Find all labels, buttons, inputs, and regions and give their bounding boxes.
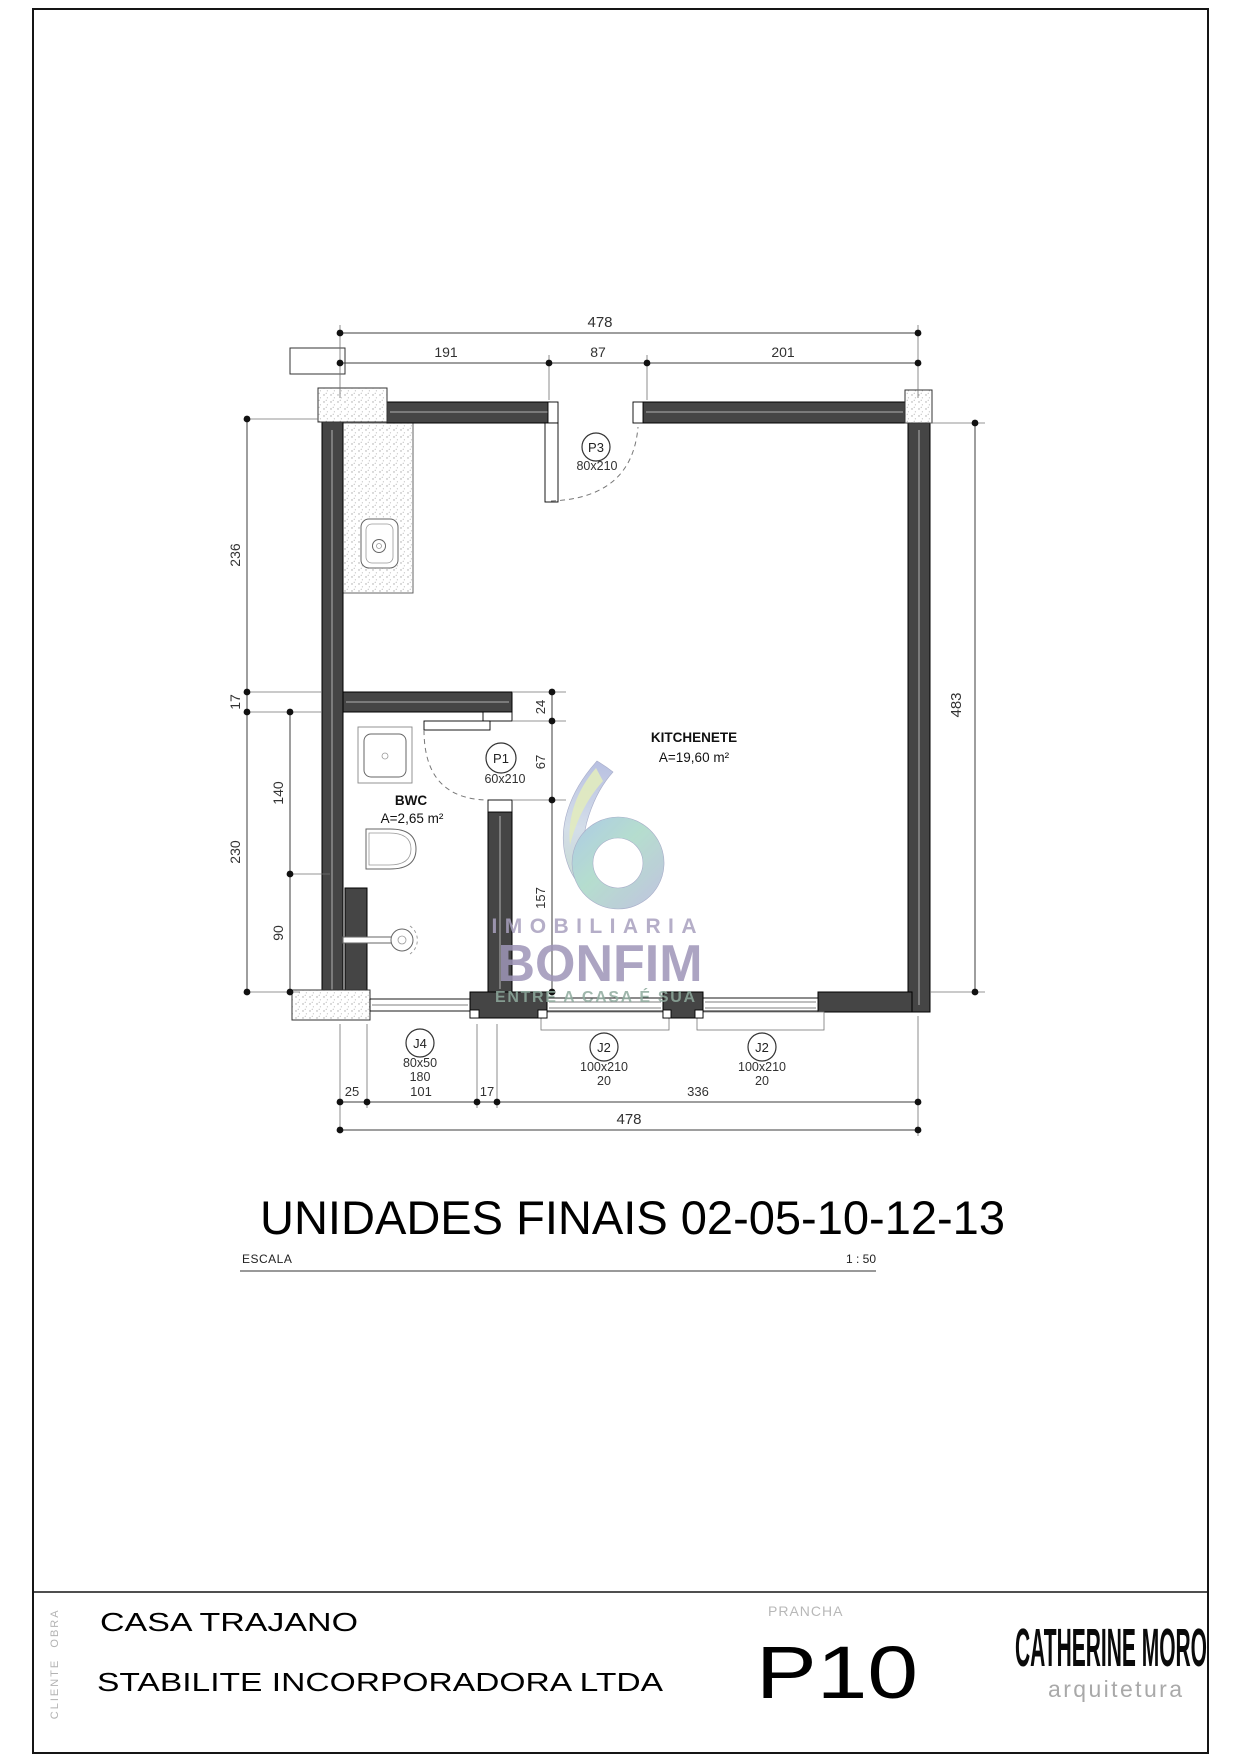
door-p1-leaf bbox=[424, 721, 490, 730]
window-j2a-id: J2 bbox=[597, 1040, 611, 1055]
dim-top-a: 191 bbox=[434, 344, 458, 360]
dim-tick bbox=[549, 689, 556, 696]
dim-tick bbox=[546, 360, 553, 367]
dim-tick bbox=[287, 989, 294, 996]
dim-mid-b: 67 bbox=[533, 755, 548, 769]
sill-shaft-bottomleft bbox=[292, 990, 370, 1020]
dim-tick bbox=[474, 1099, 481, 1106]
window-j4-id: J4 bbox=[413, 1036, 427, 1051]
room-area-bwc: A=2,65 m² bbox=[381, 811, 444, 826]
dim-top-c: 201 bbox=[771, 344, 795, 360]
titleblock-cliente-value: STABILITE INCORPORADORA LTDA bbox=[97, 1667, 664, 1697]
dim-tick bbox=[244, 989, 251, 996]
dim-bottom-b: 101 bbox=[410, 1084, 432, 1099]
door-p1-jamb-top bbox=[483, 712, 512, 721]
door-p3-jamb-left bbox=[548, 402, 558, 423]
door-p1-id: P1 bbox=[493, 751, 509, 766]
titleblock-obra-label: OBRA bbox=[49, 1608, 61, 1647]
room-label-bwc: BWC bbox=[395, 793, 427, 808]
dim-tick bbox=[915, 1127, 922, 1134]
dim-tick bbox=[915, 360, 922, 367]
frame-square-3 bbox=[663, 1010, 671, 1018]
titleblock-prancha-label: PRANCHA bbox=[768, 1603, 843, 1619]
watermark-line3: ENTRE A CASA É SUA bbox=[495, 987, 695, 1006]
window-j2a-sill bbox=[541, 1012, 669, 1030]
shower-arm bbox=[343, 937, 395, 943]
dim-tick bbox=[337, 360, 344, 367]
dim-tick bbox=[364, 1099, 371, 1106]
dim-tick bbox=[287, 871, 294, 878]
corner-shaft-topright bbox=[905, 390, 932, 423]
window-j2a-size: 100x210 bbox=[580, 1060, 628, 1074]
dim-tick bbox=[244, 709, 251, 716]
page-title: UNIDADES FINAIS 02-05-10-12-13 bbox=[260, 1191, 1005, 1244]
dim-right-total: 483 bbox=[948, 692, 965, 717]
dim-left-b: 17 bbox=[227, 694, 243, 710]
dim-tick bbox=[337, 1127, 344, 1134]
corner-shaft-topleft-upper bbox=[290, 348, 345, 374]
dim-top-total: 478 bbox=[587, 314, 612, 331]
dim-mid-a: 24 bbox=[533, 700, 548, 714]
door-p3-leaf bbox=[545, 423, 558, 502]
dim-bottom-c: 17 bbox=[480, 1084, 494, 1099]
washbasin bbox=[364, 734, 406, 777]
watermark-line2: BONFIM bbox=[498, 935, 703, 993]
window-j2b-sill: 20 bbox=[755, 1074, 769, 1088]
sink-drain-icon bbox=[373, 540, 386, 553]
dim-tick bbox=[337, 1099, 344, 1106]
dim-tick bbox=[915, 330, 922, 337]
door-p3-id: P3 bbox=[588, 440, 604, 455]
dim-tick bbox=[494, 1099, 501, 1106]
frame-square-1 bbox=[470, 1010, 479, 1018]
scale-label: ESCALA bbox=[242, 1252, 292, 1266]
dim-tick bbox=[915, 1099, 922, 1106]
room-area-kitchenete: A=19,60 m² bbox=[659, 750, 730, 765]
dim-tick bbox=[972, 989, 979, 996]
window-j4-size: 80x50 bbox=[403, 1056, 437, 1070]
dim-left-c: 230 bbox=[227, 840, 243, 864]
shower-head-icon bbox=[391, 929, 413, 951]
door-p3-size: 80x210 bbox=[576, 459, 617, 473]
window-j4-sill: 180 bbox=[410, 1070, 431, 1084]
toilet bbox=[366, 829, 416, 869]
dim-bottom-d: 336 bbox=[687, 1084, 709, 1099]
dim-tick bbox=[287, 709, 294, 716]
dim-mid-c: 157 bbox=[533, 887, 548, 909]
corner-shaft-topleft bbox=[318, 388, 387, 422]
window-j2b-sill bbox=[697, 1012, 824, 1030]
dim-tick bbox=[972, 420, 979, 427]
titleblock-firm-tagline: arquitetura bbox=[1048, 1676, 1182, 1702]
dim-tick bbox=[244, 416, 251, 423]
titleblock-cliente-label: CLIENTE bbox=[49, 1659, 61, 1719]
window-j2a-sill: 20 bbox=[597, 1074, 611, 1088]
sheet-border bbox=[33, 9, 1208, 1753]
window-j2b-size: 100x210 bbox=[738, 1060, 786, 1074]
door-p1-size: 60x210 bbox=[484, 772, 525, 786]
dim-tick bbox=[549, 718, 556, 725]
window-j2b-id: J2 bbox=[755, 1040, 769, 1055]
titleblock-obra-value: CASA TRAJANO bbox=[100, 1607, 358, 1637]
wall-bottom-right bbox=[818, 992, 912, 1012]
dim-left-inner-a: 140 bbox=[270, 781, 286, 805]
dim-top-b: 87 bbox=[590, 344, 606, 360]
titleblock-prancha-value: P10 bbox=[756, 1631, 918, 1714]
door-p1-jamb-bottom bbox=[488, 800, 512, 812]
drawing-sheet: 478 191 87 201 236 17 230 140 90 483 24 … bbox=[0, 0, 1241, 1755]
dim-left-inner-b: 90 bbox=[270, 925, 286, 941]
watermark-logo-ring bbox=[572, 817, 664, 909]
dim-tick bbox=[337, 330, 344, 337]
frame-square-2 bbox=[538, 1010, 547, 1018]
dim-tick bbox=[244, 689, 251, 696]
door-p1-swing-arc bbox=[424, 730, 486, 800]
floor-plan-svg: 478 191 87 201 236 17 230 140 90 483 24 … bbox=[0, 0, 1241, 1755]
dim-tick bbox=[644, 360, 651, 367]
watermark: IMOBILIARIA BONFIM ENTRE A CASA É SUA bbox=[492, 761, 703, 1006]
door-p3-jamb-right bbox=[633, 402, 643, 423]
dim-left-a: 236 bbox=[227, 543, 243, 567]
titleblock-firm-name: CATHERINE MORO bbox=[1015, 1618, 1207, 1678]
dim-bottom-total: 478 bbox=[616, 1111, 641, 1128]
room-label-kitchenete: KITCHENETE bbox=[651, 730, 737, 745]
frame-square-4 bbox=[695, 1010, 703, 1018]
dim-bottom-a: 25 bbox=[345, 1084, 359, 1099]
scale-value: 1 : 50 bbox=[846, 1252, 876, 1266]
window-j2b bbox=[703, 998, 818, 1011]
dim-tick bbox=[549, 797, 556, 804]
